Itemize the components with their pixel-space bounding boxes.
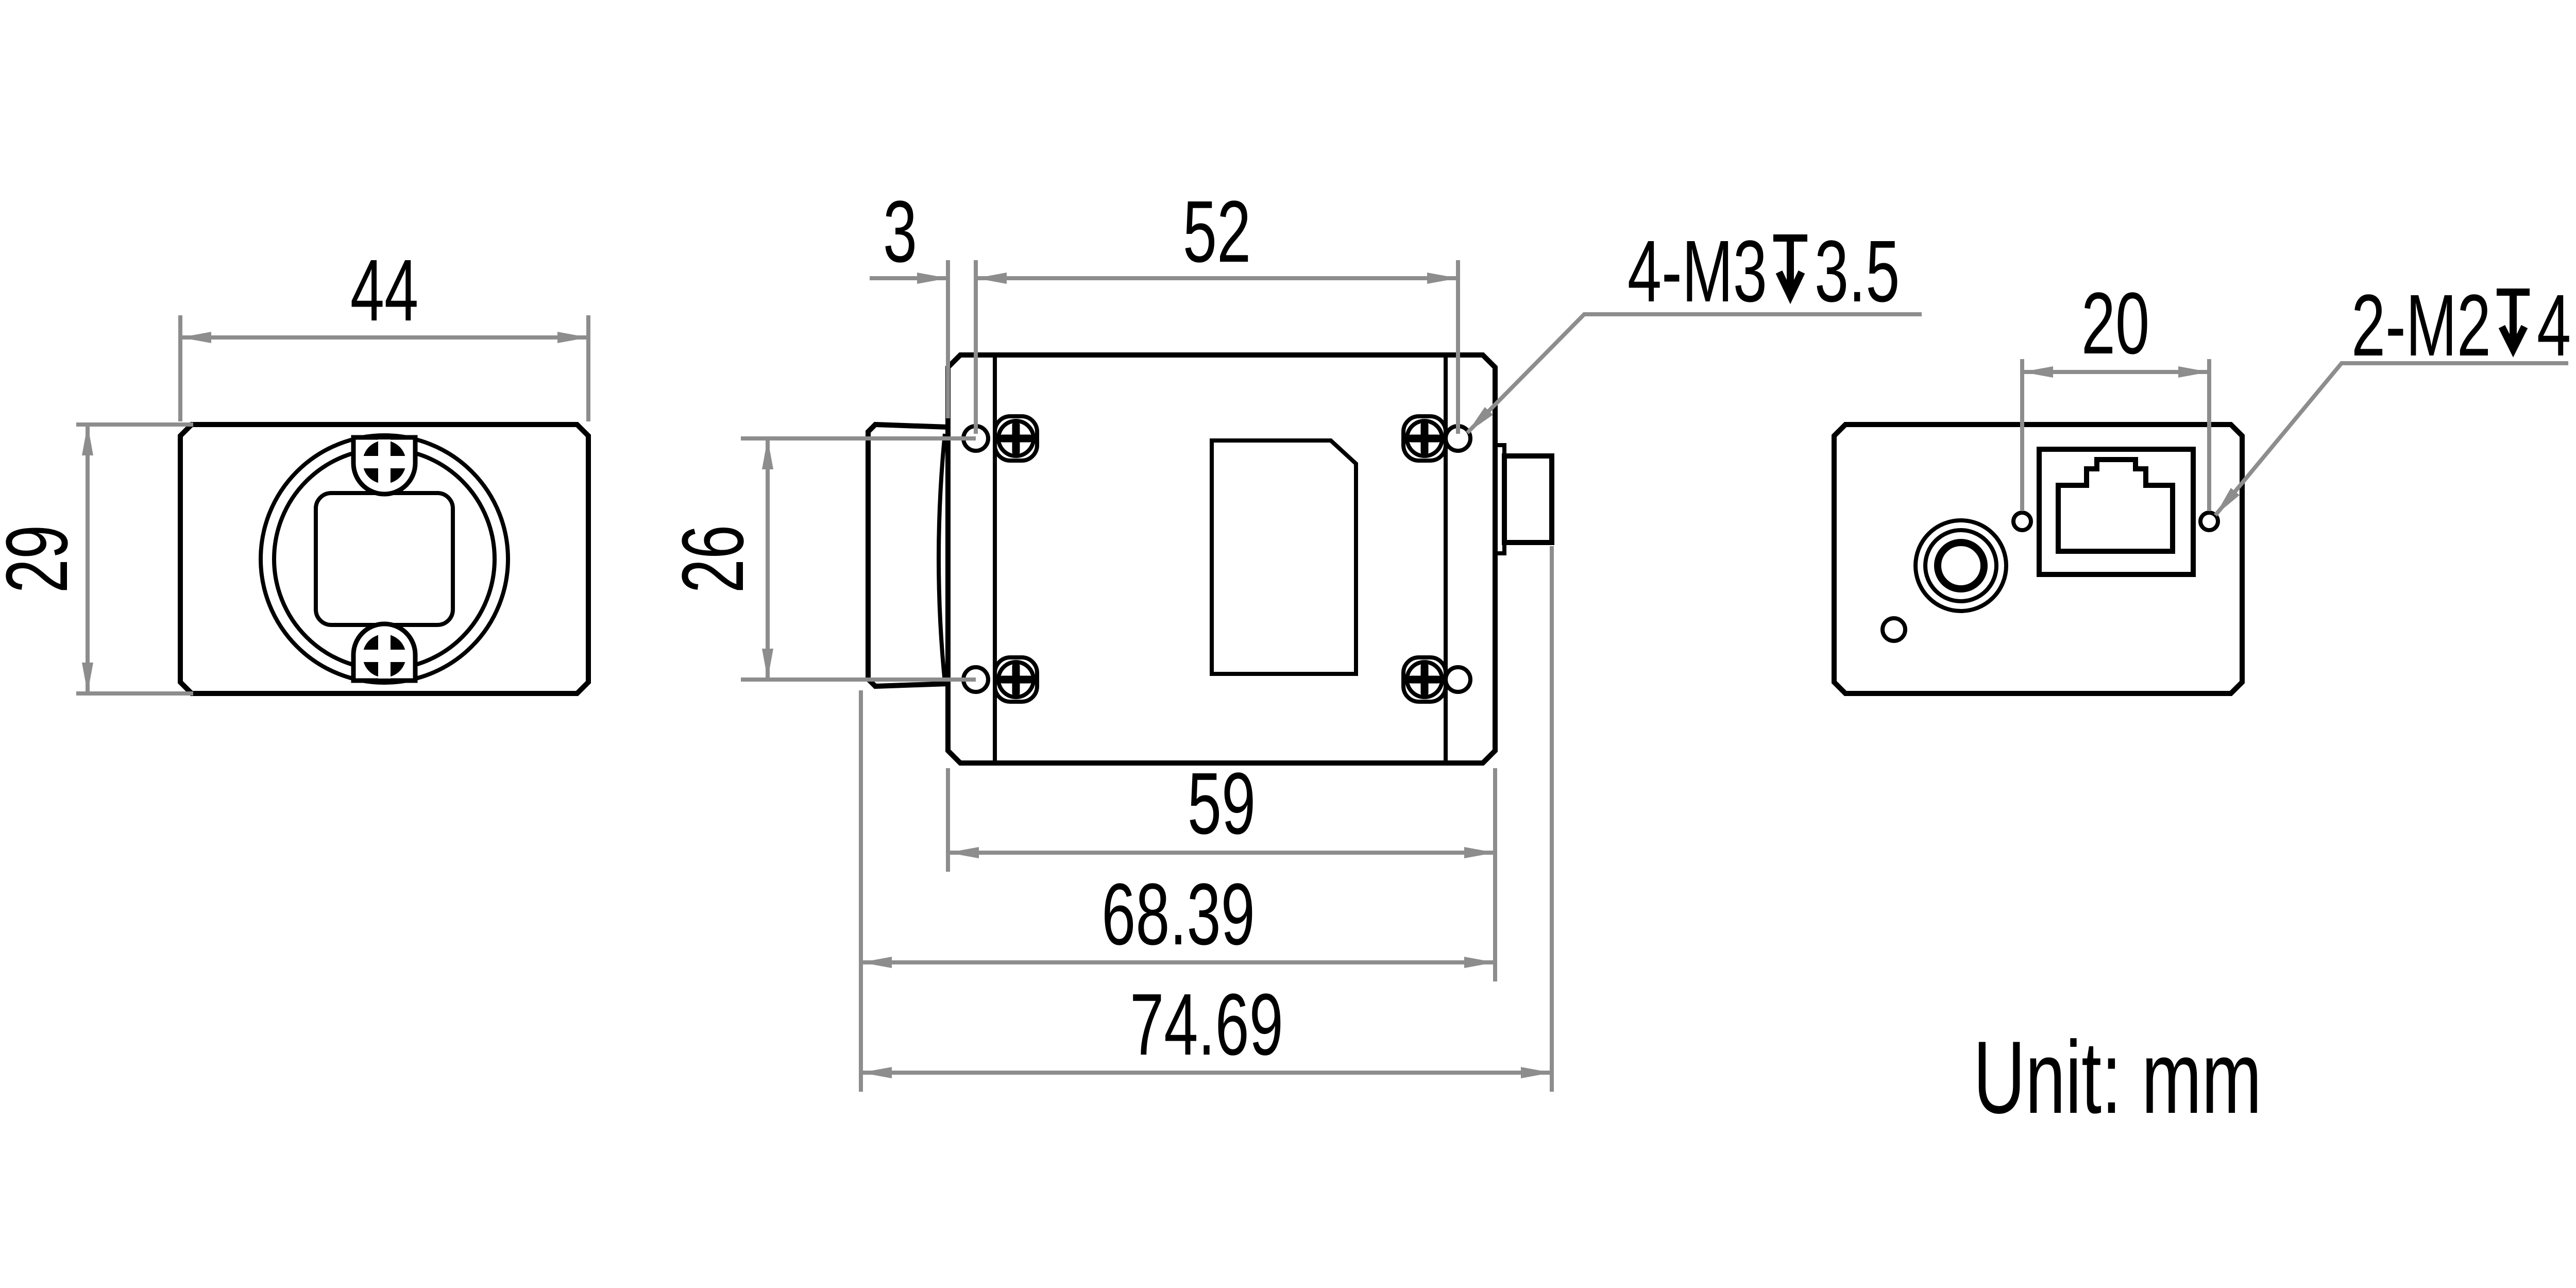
- dim-back-hole-spacing-label: 20: [2081, 275, 2149, 372]
- label-sticker-outline: [1212, 440, 1356, 674]
- m2-hole-left: [2013, 513, 2031, 530]
- callout-m2-depth: 4: [2537, 277, 2571, 375]
- dim-length-with-mount-label: 68.39: [1101, 866, 1255, 963]
- front-view: 44 29: [0, 242, 588, 693]
- dim-front-width: 44: [180, 242, 588, 421]
- back-view: 20 2-M2 4: [1834, 275, 2571, 693]
- dim-hole-spacing-length-label: 52: [1183, 183, 1251, 281]
- callout-m2-prefix: 2-M2: [2351, 277, 2491, 375]
- dim-back-hole-spacing: 20: [2022, 275, 2209, 511]
- m2-hole-right: [2200, 513, 2218, 530]
- rear-connector-barrel: [1504, 456, 1552, 543]
- dim-overall-length-label: 74.69: [1130, 976, 1283, 1074]
- lens-barrel-curve: [939, 434, 945, 682]
- unit-note: Unit: mm: [1973, 1020, 2262, 1135]
- callout-m3-depth: 3.5: [1815, 223, 1900, 320]
- sensor-window: [316, 493, 453, 625]
- plate-screw-rear-bottom-icon: [1403, 657, 1446, 702]
- depth-symbol-icon: [2497, 292, 2530, 349]
- lens-barrel-outline: [868, 425, 948, 686]
- top-view: 3 52 26 59 68.39: [664, 183, 1922, 1092]
- plate-screw-front-top-icon: [995, 416, 1037, 461]
- status-led-icon: [1883, 618, 1905, 641]
- callout-m2-holes: 2-M2 4: [2215, 277, 2571, 515]
- callout-m3-prefix: 4-M3: [1628, 223, 1767, 320]
- m3-hole-rear-bottom: [1446, 667, 1470, 692]
- dim-offset-label: 3: [883, 183, 917, 281]
- dim-body-length-label: 59: [1188, 755, 1256, 853]
- depth-symbol-icon: [1773, 238, 1807, 296]
- dim-top-holes-horizontal: 3 52: [870, 183, 1458, 434]
- plate-screw-rear-top-icon: [1403, 416, 1446, 461]
- ethernet-port-icon: [2039, 449, 2193, 574]
- dim-front-height: 29: [0, 425, 193, 693]
- plate-screw-front-bottom-icon: [995, 657, 1037, 702]
- dim-top-holes-vertical: 26: [664, 438, 976, 680]
- power-connector-icon: [1916, 520, 2006, 611]
- dim-front-height-label: 29: [0, 525, 86, 593]
- callout-m3-holes: 4-M3 3.5: [1467, 223, 1922, 433]
- front-screw-bottom-icon: [353, 624, 415, 681]
- front-screw-top-icon: [353, 437, 415, 494]
- camera-dimension-drawing: 44 29: [0, 0, 2576, 1288]
- dim-front-width-label: 44: [350, 242, 418, 340]
- dim-hole-spacing-width-label: 26: [664, 525, 762, 593]
